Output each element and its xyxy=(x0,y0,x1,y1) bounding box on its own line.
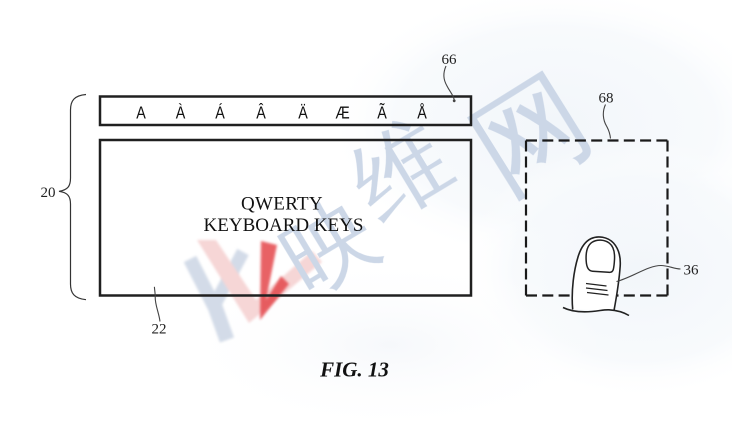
svg-text:À: À xyxy=(176,102,186,123)
svg-text:36: 36 xyxy=(684,263,700,279)
svg-text:FIG. 13: FIG. 13 xyxy=(319,358,389,382)
svg-text:Ä: Ä xyxy=(298,103,308,123)
svg-text:A: A xyxy=(136,104,146,123)
svg-text:Å: Å xyxy=(417,102,427,123)
svg-text:KEYBOARD KEYS: KEYBOARD KEYS xyxy=(204,215,364,236)
svg-text:66: 66 xyxy=(442,52,458,68)
svg-text:Æ: Æ xyxy=(335,104,349,123)
svg-text:68: 68 xyxy=(599,91,614,107)
svg-text:Â: Â xyxy=(256,102,266,123)
svg-text:22: 22 xyxy=(152,322,167,338)
svg-text:20: 20 xyxy=(41,185,56,201)
svg-text:Á: Á xyxy=(215,102,225,123)
svg-text:QWERTY: QWERTY xyxy=(241,194,323,215)
svg-text:Ã: Ã xyxy=(377,101,387,123)
